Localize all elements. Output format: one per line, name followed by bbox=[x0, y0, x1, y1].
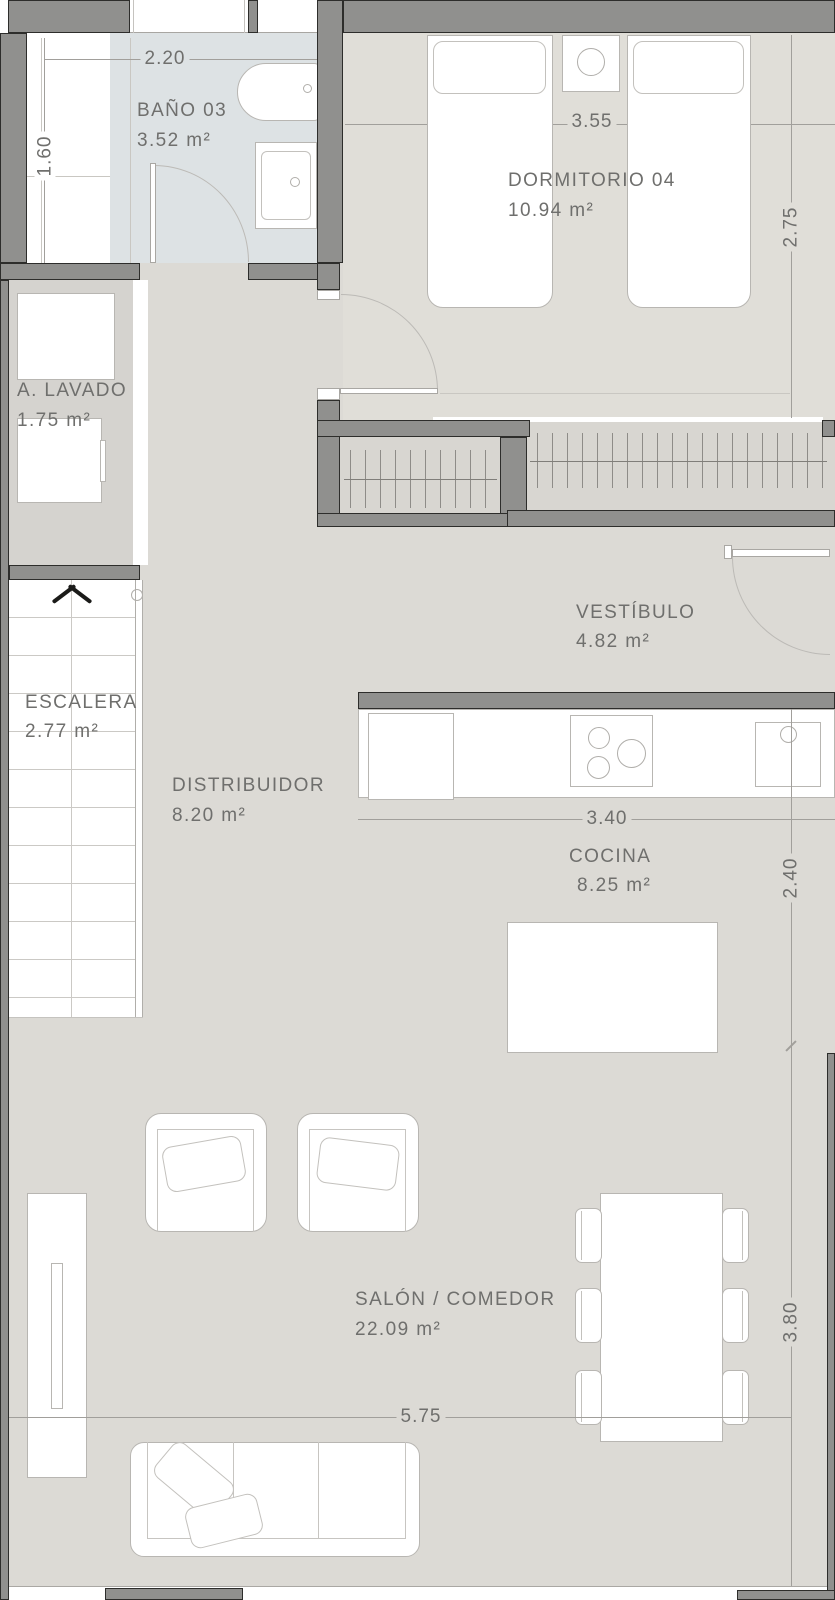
hanging-rail bbox=[530, 461, 827, 462]
floor-boundary-line bbox=[440, 393, 790, 394]
area-label: 3.52 m² bbox=[137, 131, 211, 150]
wall-bath-bottom bbox=[0, 263, 140, 280]
wall-stub bbox=[822, 420, 835, 437]
door-jamb bbox=[724, 545, 732, 559]
room-label: DORMITORIO 04 bbox=[508, 171, 676, 190]
area-label: 22.09 m² bbox=[355, 1320, 441, 1339]
chair-back-line bbox=[581, 1211, 582, 1260]
bathtub-drain bbox=[303, 84, 312, 93]
area-label: 1.75 m² bbox=[17, 411, 91, 430]
dimension-label: 2.75 bbox=[781, 203, 802, 252]
pillow bbox=[433, 41, 546, 94]
outer-wall-right bbox=[827, 1053, 835, 1600]
dimension-label: 2.40 bbox=[781, 854, 802, 903]
chair-back-line bbox=[742, 1373, 743, 1422]
room-label: A. LAVADO bbox=[17, 381, 127, 400]
sofa-divider bbox=[318, 1442, 319, 1539]
dining-table bbox=[600, 1193, 723, 1442]
room-label: SALÓN / COMEDOR bbox=[355, 1290, 555, 1309]
tv bbox=[51, 1263, 63, 1409]
washing-machine bbox=[17, 293, 115, 380]
window-frame-line bbox=[133, 0, 134, 33]
wall-laundry-bottom bbox=[9, 565, 140, 580]
outer-wall-left bbox=[0, 280, 9, 1600]
outer-wall-bottom bbox=[737, 1590, 835, 1600]
kitchen-island bbox=[507, 922, 718, 1053]
room-label: COCINA bbox=[569, 847, 651, 866]
area-label: 8.20 m² bbox=[172, 806, 246, 825]
bedroom-door-leaf bbox=[340, 388, 438, 394]
dryer-handle bbox=[100, 440, 106, 482]
floor-edge-line bbox=[8, 1586, 835, 1587]
extension-line bbox=[130, 38, 131, 263]
wall-closet-bottom bbox=[507, 510, 835, 527]
outer-wall-top bbox=[343, 0, 835, 33]
door-jamb bbox=[317, 290, 340, 300]
wall-pier bbox=[248, 0, 258, 33]
room-label: ESCALERA bbox=[25, 693, 138, 712]
hanging-rail bbox=[344, 479, 497, 480]
chair-back-line bbox=[581, 1291, 582, 1340]
table-lamp bbox=[577, 48, 605, 76]
door-jamb bbox=[317, 388, 340, 400]
dining-chair bbox=[722, 1208, 749, 1263]
stairs bbox=[9, 580, 135, 1018]
dimension-label: 1.60 bbox=[35, 132, 56, 181]
laundry-sliding-door bbox=[133, 280, 148, 565]
window bbox=[258, 0, 317, 33]
pillow bbox=[633, 41, 744, 94]
wall-bath-bedroom bbox=[317, 0, 343, 263]
dining-chair bbox=[575, 1288, 602, 1343]
dimension-label: 5.75 bbox=[397, 1406, 446, 1427]
burner bbox=[588, 727, 610, 749]
dimension-label: 3.55 bbox=[568, 111, 617, 132]
chair-back-line bbox=[742, 1211, 743, 1260]
stairs-center-line bbox=[71, 580, 72, 1018]
dining-chair bbox=[575, 1208, 602, 1263]
area-label: 8.25 m² bbox=[577, 876, 651, 895]
area-label: 10.94 m² bbox=[508, 201, 594, 220]
floor-plan: BAÑO 03 3.52 m² DORMITORIO 04 10.94 m² A… bbox=[0, 0, 835, 1600]
dimension-line bbox=[791, 709, 792, 1586]
wall-closet-bottom bbox=[317, 513, 527, 527]
outer-wall-left bbox=[0, 33, 27, 263]
faucet-icon bbox=[290, 177, 300, 187]
faucet-icon bbox=[780, 726, 797, 743]
handrail-post bbox=[131, 589, 143, 601]
chair-back-line bbox=[742, 1291, 743, 1340]
window bbox=[130, 0, 248, 33]
fridge bbox=[368, 713, 454, 800]
area-label: 4.82 m² bbox=[576, 632, 650, 651]
washbasin-bowl bbox=[261, 151, 311, 220]
wall-bedroom-left bbox=[317, 263, 340, 290]
room-label: DISTRIBUIDOR bbox=[172, 776, 325, 795]
entrance-door-leaf bbox=[732, 549, 830, 557]
dining-chair bbox=[722, 1288, 749, 1343]
chair-back-line bbox=[581, 1373, 582, 1422]
stairs-bottom-line bbox=[9, 1017, 143, 1018]
dimension-label: 3.40 bbox=[583, 808, 632, 829]
stairs-side-band bbox=[135, 580, 143, 1018]
wall-bath-bottom bbox=[248, 263, 322, 280]
area-label: 2.77 m² bbox=[25, 722, 99, 741]
burner bbox=[617, 739, 646, 768]
wall-kitchen-back bbox=[358, 692, 835, 709]
window-frame-line bbox=[244, 0, 245, 33]
outer-wall-top bbox=[8, 0, 130, 33]
dimension-label: 3.80 bbox=[781, 1298, 802, 1347]
seat-cushion bbox=[315, 1136, 400, 1191]
burner bbox=[587, 756, 610, 779]
bathroom-door-leaf bbox=[150, 163, 156, 263]
wall-closet-top bbox=[317, 420, 530, 437]
room-label: VESTÍBULO bbox=[576, 603, 695, 622]
outer-wall-bottom bbox=[105, 1588, 243, 1600]
room-label: BAÑO 03 bbox=[137, 101, 227, 120]
dimension-label: 2.20 bbox=[141, 48, 190, 69]
